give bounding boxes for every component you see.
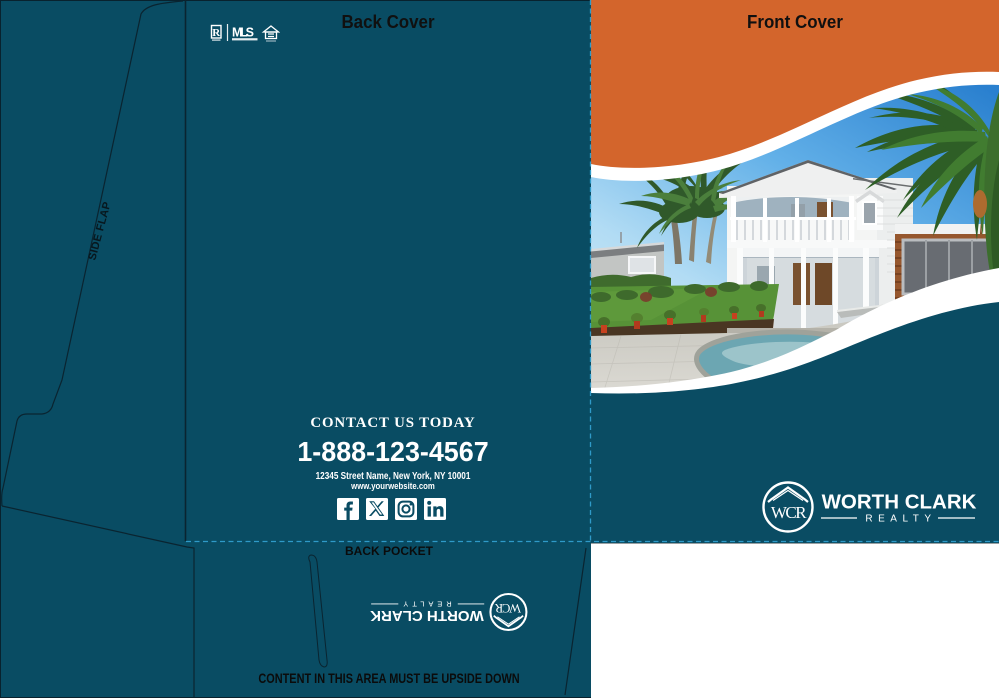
svg-text:R: R [212,27,221,39]
svg-text:WORTH CLARK: WORTH CLARK [370,607,484,623]
svg-text:REALTY: REALTY [865,514,936,525]
svg-text:MLS: MLS [232,26,254,40]
svg-text:REALTY: REALTY [399,599,451,608]
svg-text:WCR: WCR [494,601,521,615]
svg-text:WORTH CLARK: WORTH CLARK [822,492,977,514]
svg-text:WCR: WCR [771,503,807,522]
